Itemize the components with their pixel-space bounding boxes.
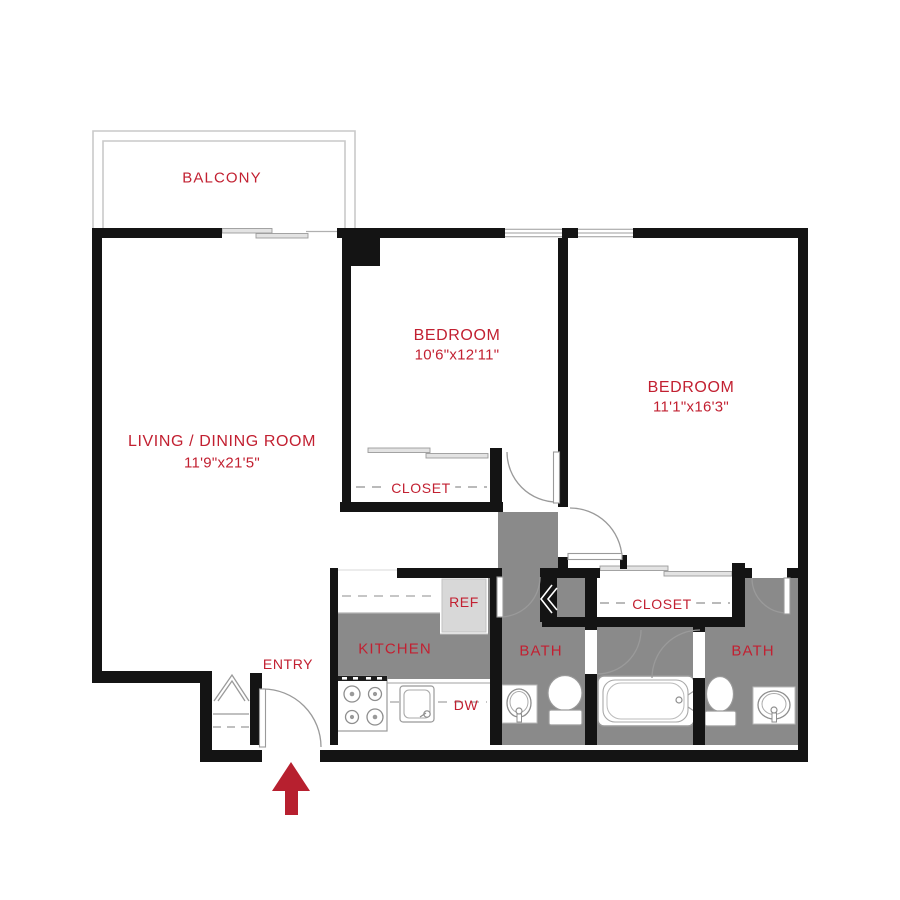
bedroom2-label: BEDROOM [648,379,735,397]
bath1-label: BATH [519,643,562,660]
entry-door-arc [263,689,321,747]
bedroom1-door-leaf [554,452,560,503]
bath2-door-leaf [784,578,790,614]
bedroom2-door-leaf [568,554,622,560]
entry-door-leaf [260,689,266,747]
bath1-sink-icon [502,685,537,723]
kitchen-counter [338,577,440,613]
bedroom2-dimensions: 11'1"x16'3" [653,399,729,416]
entry-label: ENTRY [263,656,313,672]
stove-icon [337,676,387,731]
closet2-label: CLOSET [628,596,696,612]
bedroom1-window-icon [505,228,562,238]
bath2-toilet-icon [705,677,736,727]
kitchen-label: KITCHEN [358,641,432,658]
refrigerator-label: REF [449,594,479,610]
floor-plan: BALCONY LIVING / DINING ROOM 11'9"x21'5"… [0,0,900,900]
balcony-label: BALCONY [182,170,261,187]
closet1-label: CLOSET [387,480,455,496]
bedroom1-dimensions: 10'6"x12'11" [415,347,500,364]
kitchen-sink-icon [400,686,434,722]
bedroom1-door-arc [507,452,557,502]
dishwasher-label: DW [454,697,479,713]
entry-closet-bifold-icon [213,675,249,727]
bath1-door-leaf [497,577,503,617]
closet1-sliding-door-icon [368,448,488,458]
bedroom2-door-arc [570,508,622,557]
bathtub-icon [598,676,694,726]
living-dining-room-label: LIVING / DINING ROOM [128,433,316,451]
living-dining-room-dimensions: 11'9"x21'5" [184,455,260,472]
bedroom1-label: BEDROOM [414,327,501,345]
bath2-label: BATH [731,643,774,660]
bath2-sink-icon [753,687,795,724]
bedroom2-window-icon [578,228,633,238]
balcony-sliding-door-icon [222,229,340,239]
entry-arrow-icon [272,762,310,815]
bath1-toilet-icon [548,676,582,726]
closet2-sliding-door-icon [600,566,732,576]
